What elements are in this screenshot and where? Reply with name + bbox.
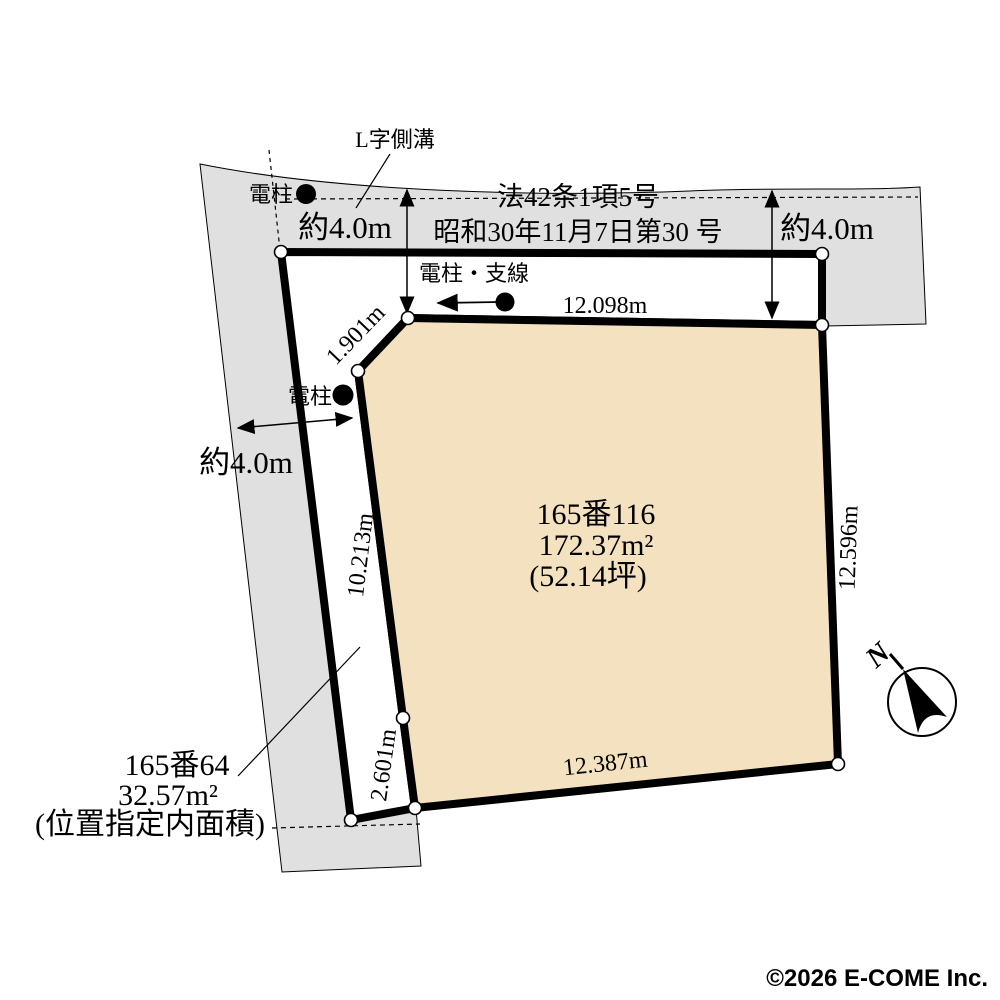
- utility-pole-dot-top: [296, 184, 316, 204]
- vertex-marker: [345, 814, 358, 827]
- main-parcel-lot: 165番116: [537, 498, 656, 531]
- vertex-marker: [397, 712, 410, 725]
- pole-top-label: 電柱: [249, 182, 293, 207]
- road-law-line2: 昭和30年11月7日第30 号: [433, 217, 722, 247]
- vertex-marker: [816, 248, 829, 261]
- vertex-marker: [832, 758, 845, 771]
- land-plot-diagram: L字側溝 電柱 法42条1項5号 昭和30年11月7日第30 号 約4.0m 約…: [0, 0, 1000, 1000]
- utility-pole-dot-mid: [333, 385, 354, 406]
- gutter-label: L字側溝: [355, 127, 434, 152]
- road-width-left: 約4.0m: [199, 445, 293, 480]
- road-width-top-right: 約4.0m: [780, 211, 874, 246]
- copyright-text: ©2026 E-COME Inc.: [766, 965, 988, 992]
- vertex-marker: [402, 312, 415, 325]
- road-width-top-left: 約4.0m: [298, 210, 392, 245]
- road-law-line1: 法42条1項5号: [497, 182, 659, 212]
- dim-top: 12.098m: [563, 293, 648, 319]
- vertex-marker: [816, 319, 829, 332]
- vertex-marker: [275, 246, 288, 259]
- vertex-marker: [352, 365, 365, 378]
- north-label: N: [859, 636, 898, 675]
- pole-wire-label: 電柱・支線: [419, 261, 529, 286]
- main-parcel-tsubo: (52.14坪): [529, 560, 646, 593]
- plot-svg: L字側溝 電柱 法42条1項5号 昭和30年11月7日第30 号 約4.0m 約…: [0, 0, 1000, 1000]
- dim-right: 12.596m: [835, 505, 864, 591]
- pole-mid-label: 電柱: [288, 384, 332, 409]
- vertex-marker: [409, 802, 422, 815]
- road-parcel-lot: 165番64: [125, 749, 230, 782]
- main-parcel-area: 172.37m²: [539, 529, 654, 562]
- road-parcel-note: (位置指定内面積): [35, 808, 265, 841]
- pole-wire-arrow: [438, 302, 500, 303]
- utility-pole-dot-wire: [496, 293, 515, 312]
- north-compass-icon: N: [859, 636, 956, 736]
